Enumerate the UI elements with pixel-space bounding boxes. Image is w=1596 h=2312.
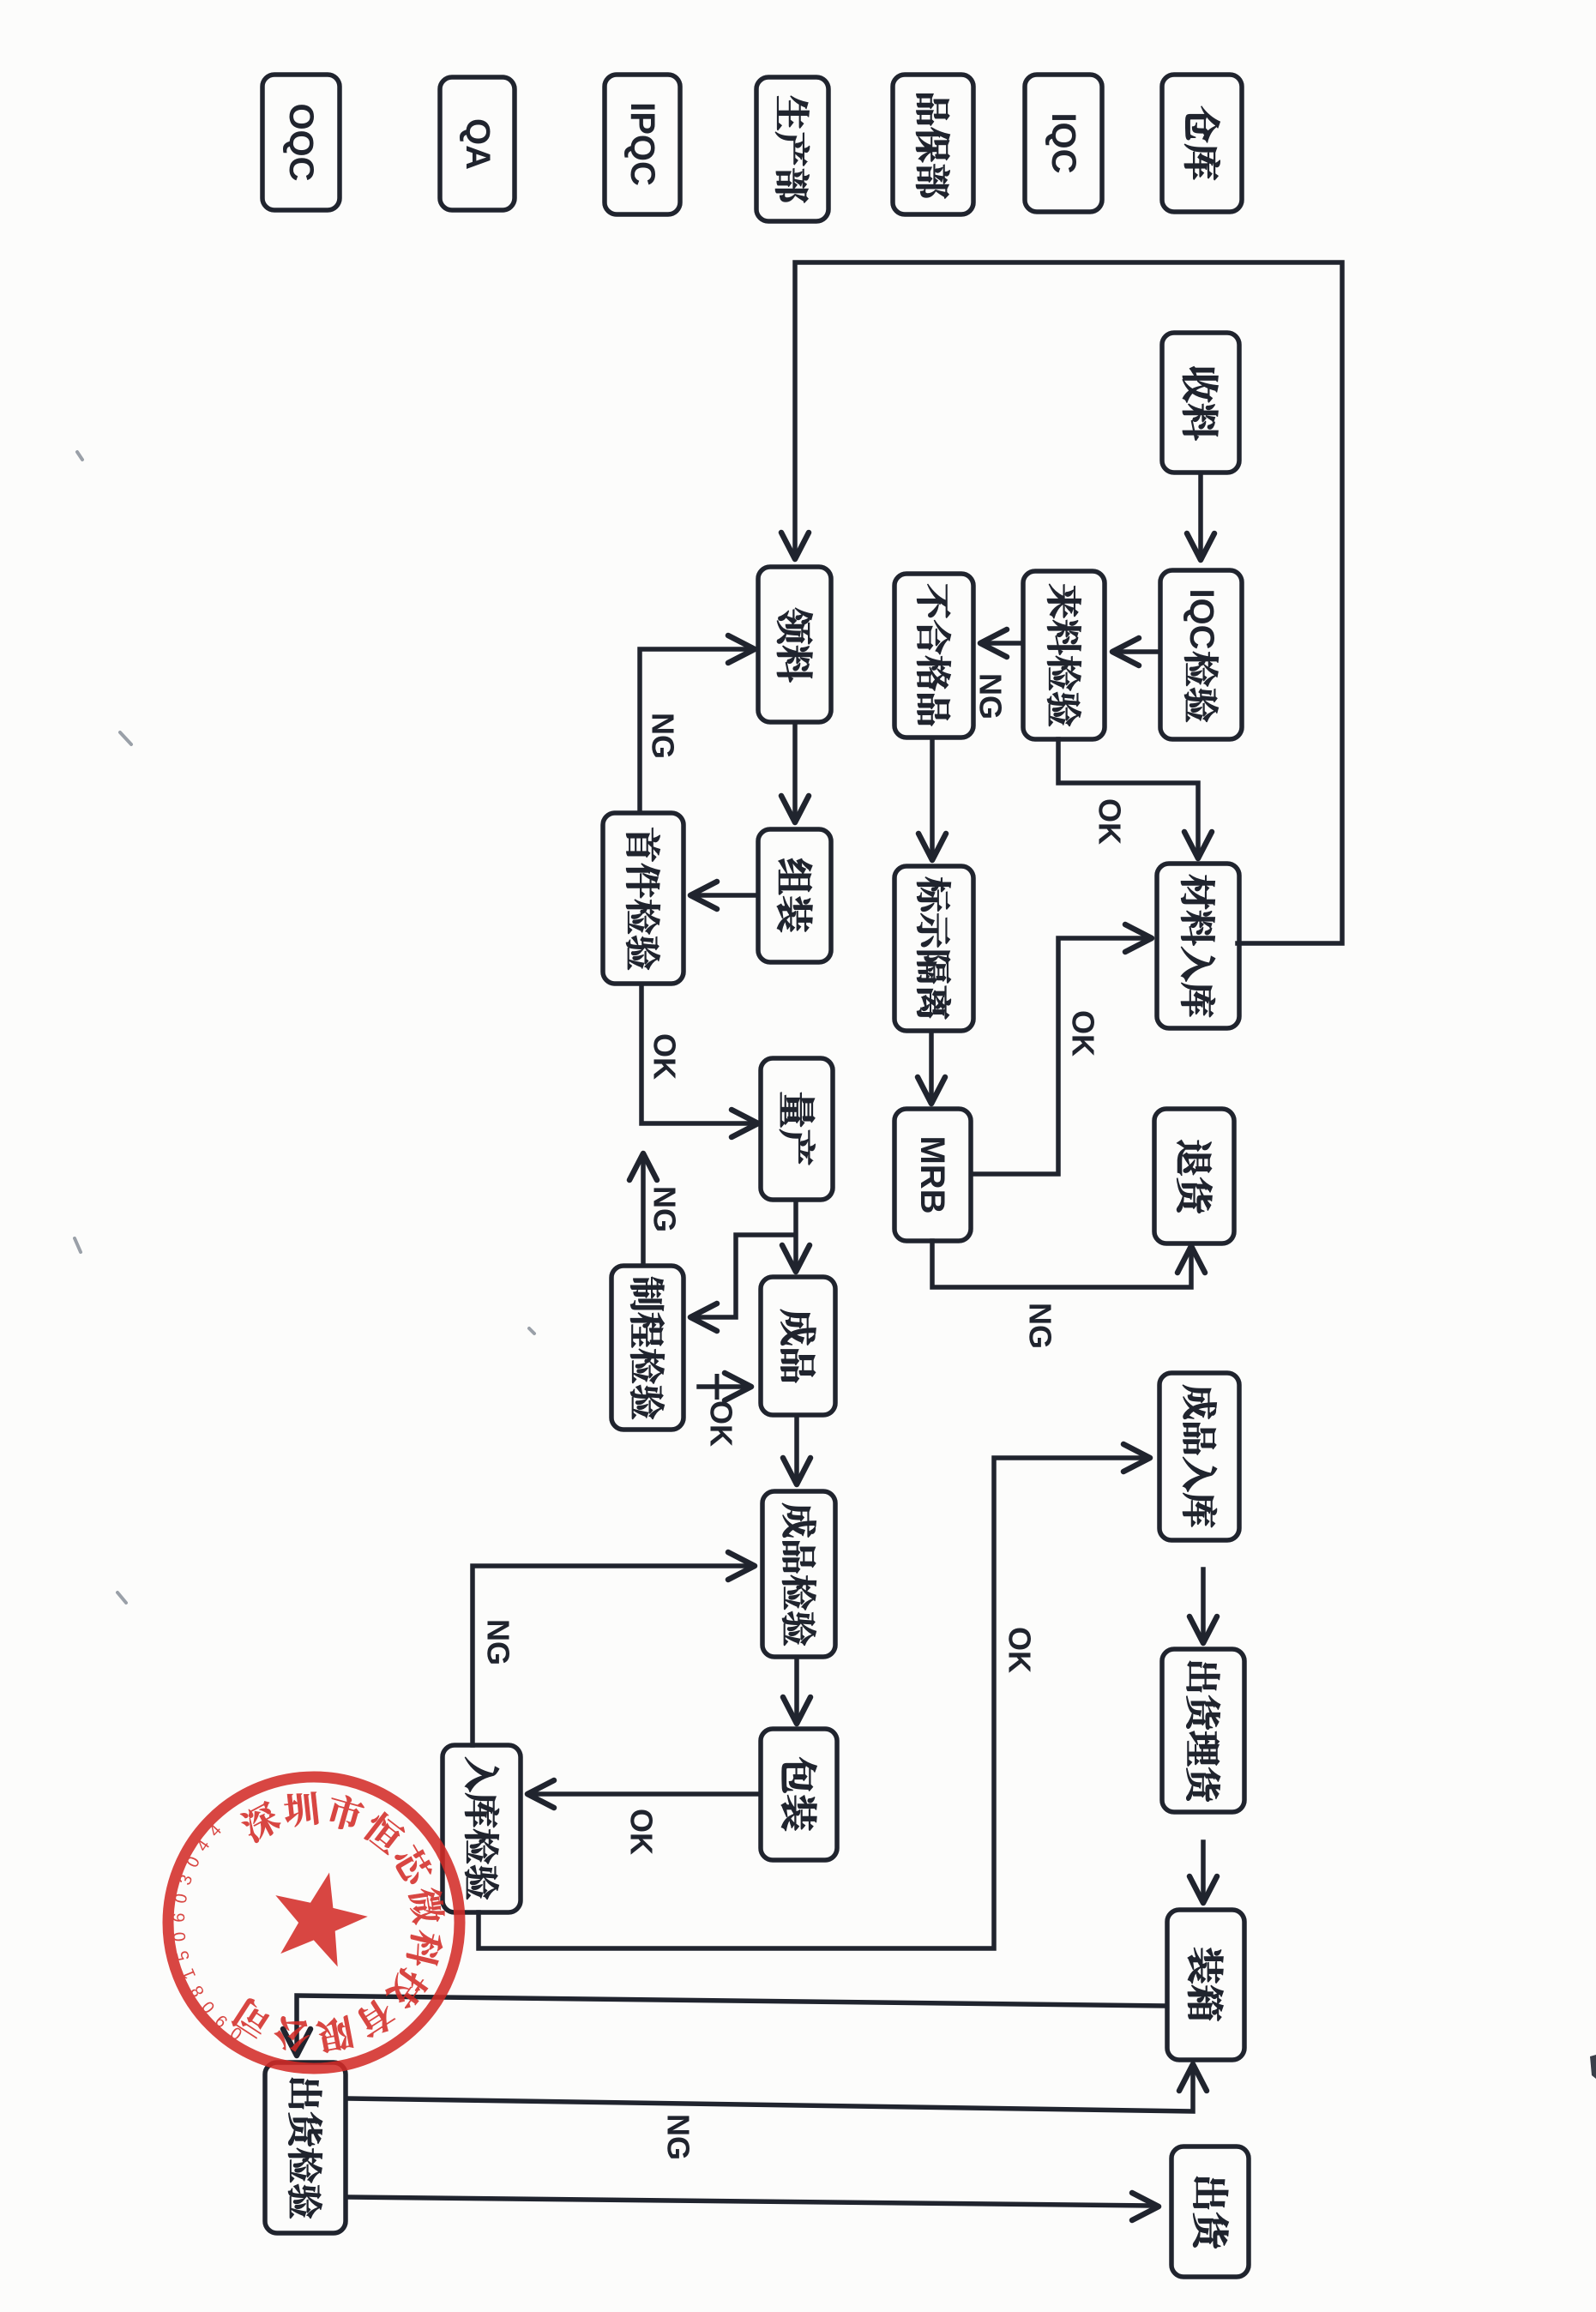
svg-text:3: 3 xyxy=(176,1872,196,1888)
svg-text:0: 0 xyxy=(198,1997,219,2016)
svg-text:1: 1 xyxy=(179,1966,201,1982)
svg-text:6: 6 xyxy=(170,1912,189,1923)
svg-text:4: 4 xyxy=(193,1836,214,1855)
svg-text:0: 0 xyxy=(170,1931,190,1942)
svg-text:8: 8 xyxy=(187,1982,208,2000)
svg-text:0: 0 xyxy=(183,1854,204,1871)
svg-text:9: 9 xyxy=(212,2011,232,2032)
svg-text:4: 4 xyxy=(205,1821,226,1840)
